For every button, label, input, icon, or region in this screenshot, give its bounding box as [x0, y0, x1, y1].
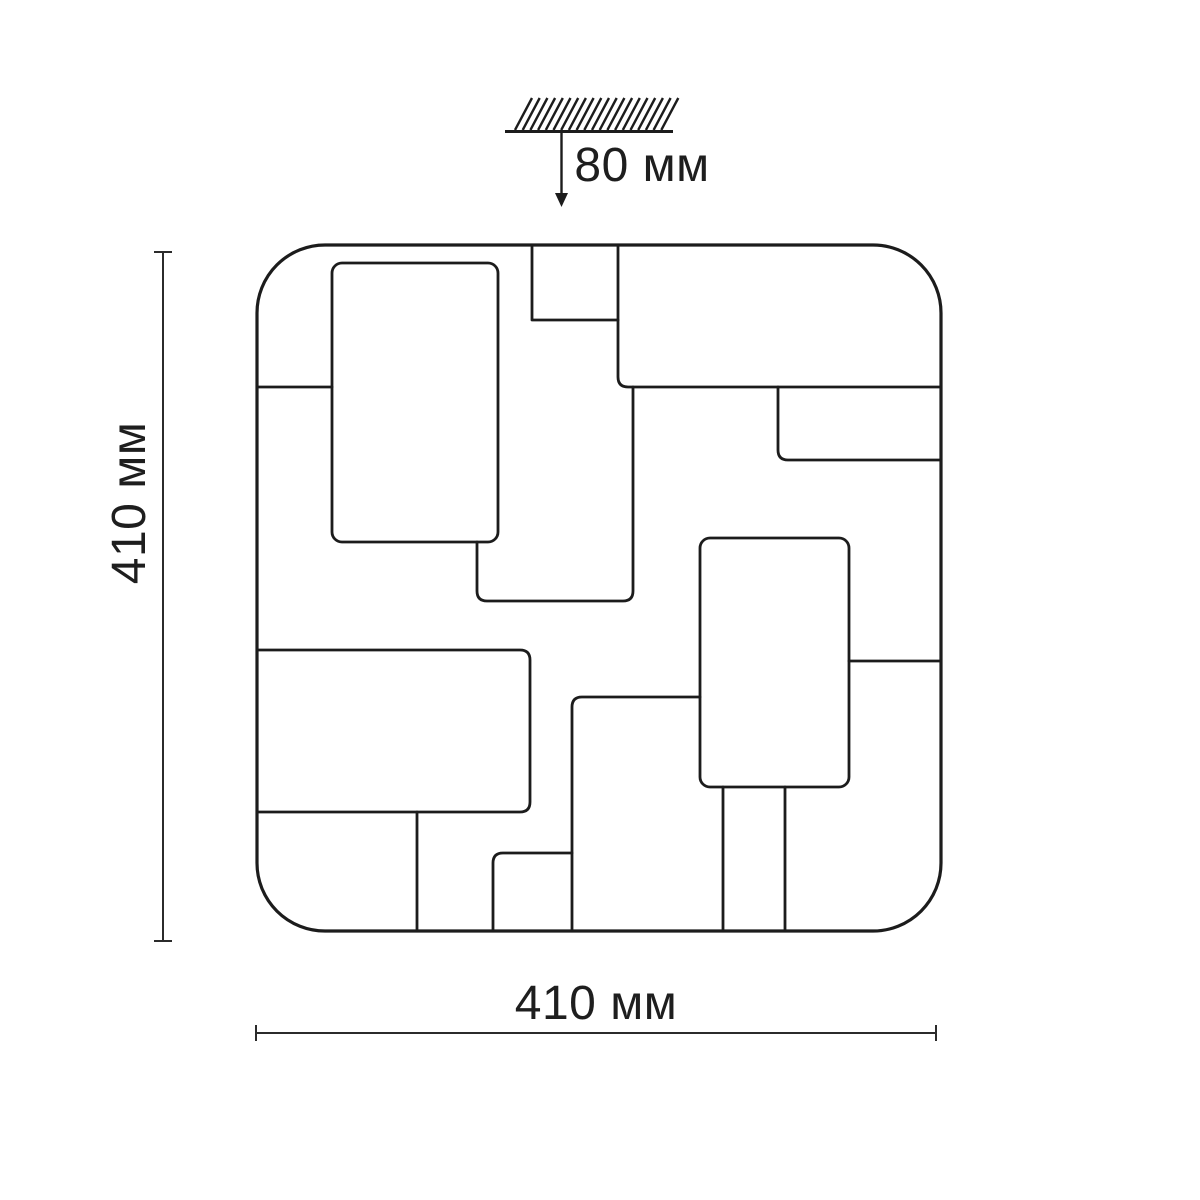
bottom-left-panel — [257, 650, 530, 812]
ceiling-hatch-stroke — [515, 98, 532, 130]
lower-middle-seam — [572, 697, 700, 931]
ceiling-hatch-stroke — [523, 98, 540, 130]
technical-drawing-canvas: 80 мм 410 мм 410 мм — [0, 0, 1200, 1200]
mount-arrow-head — [555, 193, 568, 207]
ceiling-hatch-stroke — [623, 98, 640, 130]
ceiling-hatch-stroke — [554, 98, 571, 130]
ceiling-hatch-stroke — [600, 98, 617, 130]
ceiling-hatch-stroke — [654, 98, 671, 130]
ceiling-hatch-stroke — [646, 98, 663, 130]
ceiling-hatch-stroke — [592, 98, 609, 130]
ceiling-hatch-stroke — [661, 98, 678, 130]
ceiling-hatch-stroke — [561, 98, 578, 130]
fixture-outline — [257, 245, 941, 931]
top-notch — [532, 245, 618, 320]
mount-depth-label: 80 мм — [574, 142, 709, 190]
ceiling-hatch-stroke — [638, 98, 655, 130]
ceiling-hatch-stroke — [584, 98, 601, 130]
right-band — [778, 387, 941, 460]
ceiling-hatch-stroke — [530, 98, 547, 130]
center-right-panel — [700, 538, 849, 787]
ceiling-hatch-stroke — [569, 98, 586, 130]
ceiling-hatch-stroke — [607, 98, 624, 130]
ceiling-hatch-stroke — [615, 98, 632, 130]
center-panel — [477, 387, 633, 601]
width-dimension-label: 410 мм — [515, 980, 677, 1028]
ceiling-hatch-stroke — [631, 98, 648, 130]
top-left-panel — [332, 263, 498, 542]
ceiling-hatch-stroke — [577, 98, 594, 130]
height-dimension-label: 410 мм — [106, 422, 154, 584]
top-right-seam — [618, 245, 941, 387]
ceiling-hatch-stroke — [546, 98, 563, 130]
bottom-small-panel — [493, 853, 572, 931]
ceiling-hatch-stroke — [538, 98, 555, 130]
